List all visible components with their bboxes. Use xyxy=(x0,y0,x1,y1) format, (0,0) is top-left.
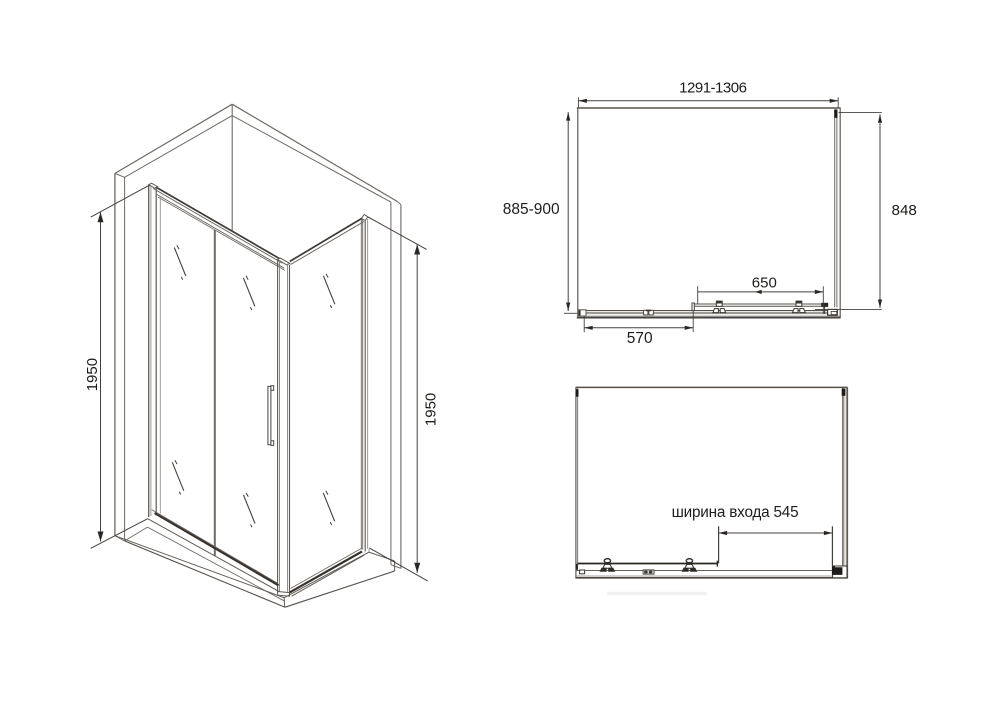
svg-text:848: 848 xyxy=(892,202,917,219)
svg-text:1950: 1950 xyxy=(84,358,101,391)
svg-text:ширина входа 545: ширина входа 545 xyxy=(672,504,799,521)
svg-text:650: 650 xyxy=(752,274,777,291)
svg-text:1950: 1950 xyxy=(423,393,440,426)
svg-text:885-900: 885-900 xyxy=(503,201,560,218)
svg-text:1291-1306: 1291-1306 xyxy=(679,79,746,96)
svg-text:570: 570 xyxy=(627,330,653,347)
